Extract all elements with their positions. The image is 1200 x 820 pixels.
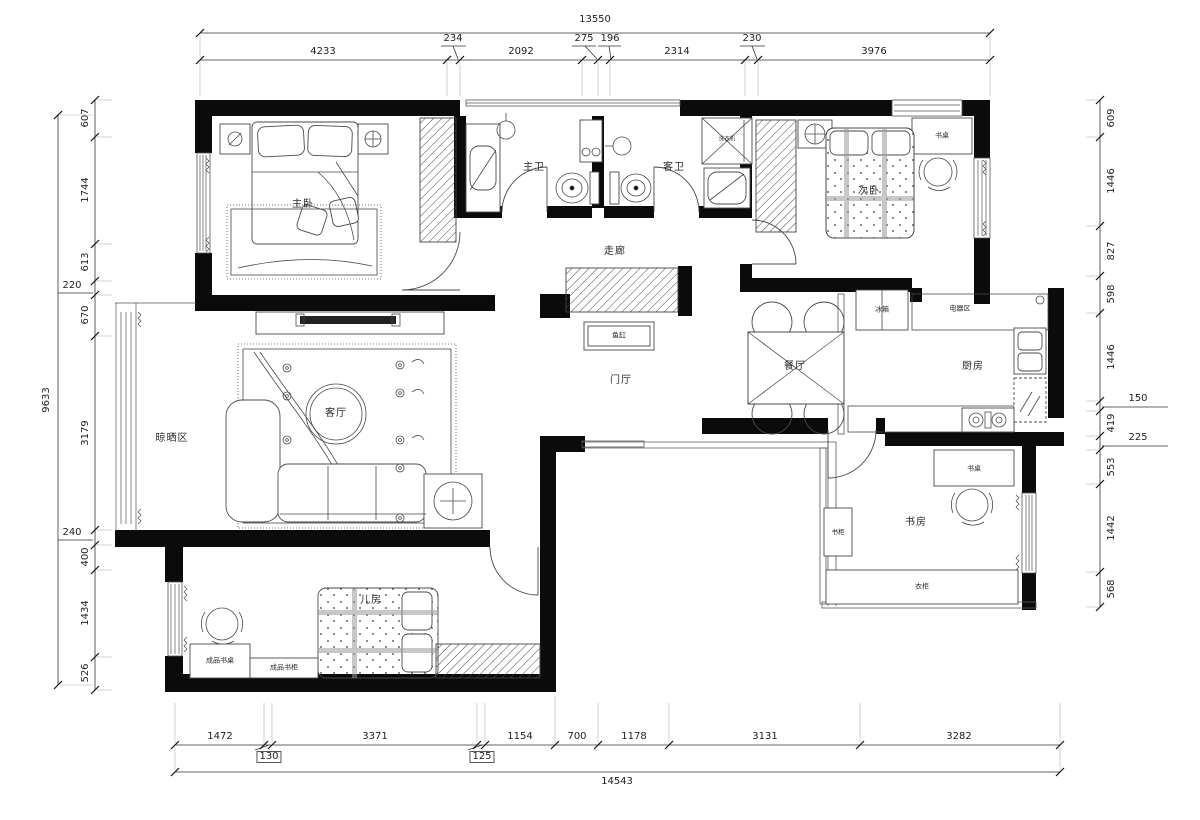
dim-left-seg: 670 bbox=[81, 305, 91, 324]
room-label-kids-room: 儿房 bbox=[360, 596, 382, 606]
feature-label-desk-study: 书桌 bbox=[967, 466, 981, 473]
dim-right-seg: 827 bbox=[1107, 241, 1117, 260]
dim-right-seg: 150 bbox=[1128, 394, 1147, 404]
feature-label-appliance-area: 电器区 bbox=[950, 306, 971, 313]
feature-label-bookcase: 书柜 bbox=[832, 529, 845, 536]
dim-right-seg: 553 bbox=[1107, 457, 1117, 476]
floorplan-page: 13550 4233 234 2092 275 196 2314 230 397… bbox=[0, 0, 1200, 820]
dim-top-overall: 13550 bbox=[579, 15, 611, 25]
dim-bottom-seg: 1154 bbox=[507, 732, 532, 742]
feature-label-wardrobe: 衣柜 bbox=[915, 584, 929, 591]
dim-right-seg: 1442 bbox=[1107, 515, 1117, 540]
dim-top-seg: 196 bbox=[600, 34, 619, 44]
feature-label-ready-bookcase: 成品书柜 bbox=[270, 665, 298, 672]
room-label-master-bedroom: 主卧 bbox=[292, 200, 314, 210]
dim-left-overall: 9633 bbox=[42, 387, 52, 412]
room-label-guest-bath: 客卫 bbox=[663, 163, 685, 173]
dim-top-seg: 230 bbox=[742, 34, 761, 44]
room-label-foyer: 门厅 bbox=[610, 376, 632, 386]
dim-bottom-seg: 130 bbox=[256, 751, 281, 763]
dim-right-seg: 568 bbox=[1107, 579, 1117, 598]
dim-right-seg: 419 bbox=[1107, 413, 1117, 432]
dim-top-seg: 2314 bbox=[664, 47, 689, 57]
dim-bottom-seg: 700 bbox=[567, 732, 586, 742]
dim-right-seg: 1446 bbox=[1107, 344, 1117, 369]
dim-bottom-seg: 1472 bbox=[207, 732, 232, 742]
dim-top-seg: 4233 bbox=[310, 47, 335, 57]
dim-left-seg: 3179 bbox=[81, 420, 91, 445]
dim-right-seg: 598 bbox=[1107, 284, 1117, 303]
dim-right-seg: 609 bbox=[1107, 108, 1117, 127]
floorplan-canvas bbox=[0, 0, 1200, 820]
dim-top-seg: 275 bbox=[574, 34, 593, 44]
feature-label-desk-bedroom: 书桌 bbox=[935, 133, 949, 140]
dim-left-seg: 613 bbox=[81, 252, 91, 271]
dim-bottom-seg: 3371 bbox=[362, 732, 387, 742]
dim-left-seg: 220 bbox=[62, 281, 81, 291]
dim-bottom-seg: 125 bbox=[469, 751, 494, 763]
dim-bottom-seg: 3131 bbox=[752, 732, 777, 742]
room-label-kitchen: 厨房 bbox=[962, 362, 984, 372]
room-label-study: 书房 bbox=[905, 518, 927, 528]
dim-top-seg: 2092 bbox=[508, 47, 533, 57]
dim-left-seg: 240 bbox=[62, 528, 81, 538]
dim-bottom-seg: 1178 bbox=[621, 732, 646, 742]
dim-bottom-overall: 14543 bbox=[601, 777, 633, 787]
room-label-second-bedroom: 次卧 bbox=[858, 187, 880, 197]
dim-left-seg: 1744 bbox=[81, 177, 91, 202]
room-label-living-room: 客厅 bbox=[325, 409, 347, 419]
room-label-dining-room: 餐厅 bbox=[784, 362, 806, 372]
dim-left-seg: 1434 bbox=[81, 600, 91, 625]
dim-top-seg: 3976 bbox=[861, 47, 886, 57]
dim-right-seg: 1446 bbox=[1107, 168, 1117, 193]
dim-left-seg: 400 bbox=[81, 547, 91, 566]
room-label-corridor: 走廊 bbox=[604, 247, 626, 257]
dim-left-seg: 607 bbox=[81, 108, 91, 127]
room-label-drying-area: 晾晒区 bbox=[156, 434, 189, 444]
feature-label-washing-machine: 洗衣机 bbox=[719, 137, 736, 143]
room-label-master-bath: 主卫 bbox=[523, 163, 545, 173]
dim-left-seg: 526 bbox=[81, 663, 91, 682]
dim-bottom-seg: 3282 bbox=[946, 732, 971, 742]
feature-label-fish-tank: 鱼缸 bbox=[612, 333, 626, 340]
feature-label-ready-desk: 成品书桌 bbox=[206, 658, 234, 665]
feature-label-fridge: 冰箱 bbox=[875, 307, 889, 314]
dim-top-seg: 234 bbox=[443, 34, 462, 44]
dim-right-seg: 225 bbox=[1128, 433, 1147, 443]
